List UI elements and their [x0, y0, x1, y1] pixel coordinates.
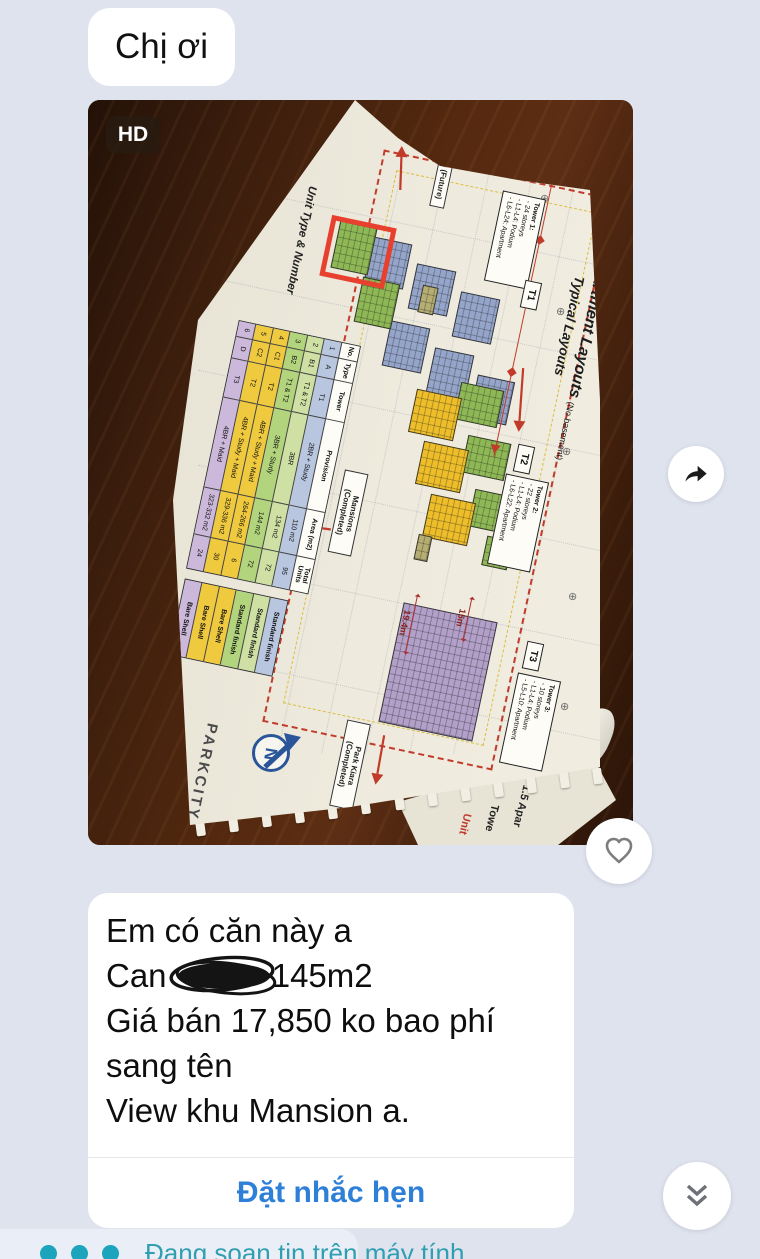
listing-line-5: View khu Mansion a.	[106, 1088, 556, 1133]
typing-dots-icon	[40, 1245, 119, 1259]
binding-tab	[526, 776, 537, 793]
listing-line-2-prefix: Can	[106, 957, 176, 994]
building-t2-yellow	[408, 389, 462, 442]
survey-marker-icon: ⊕	[557, 701, 571, 712]
listing-line-4: sang tên	[106, 1043, 556, 1088]
red-arrow-hh08	[393, 146, 409, 192]
building-t2-yellow	[415, 441, 469, 494]
set-reminder-button[interactable]: Đặt nhắc hẹn	[88, 1158, 574, 1227]
message-bubble-greeting: Chị ơi	[88, 8, 235, 86]
hd-badge: HD	[106, 116, 160, 153]
tower-tag-3: T3	[522, 641, 544, 672]
peek-text: Towe	[483, 803, 501, 832]
typing-indicator: Đang soạn tin trên máy tính	[0, 1229, 358, 1259]
binding-tab	[559, 772, 570, 789]
listing-line-1: Em có căn này a	[106, 908, 556, 953]
heart-reaction-button[interactable]	[586, 818, 652, 884]
share-forward-icon	[678, 457, 714, 491]
greeting-text: Chị ơi	[115, 27, 208, 66]
listing-line-2-suffix: 145m2	[272, 957, 373, 994]
listing-line-2: Can 145m2	[106, 953, 556, 998]
survey-marker-icon: ⊕	[565, 591, 579, 602]
scroll-to-bottom-button[interactable]	[663, 1162, 731, 1230]
photo-message[interactable]: 1.5 Apar Towe Unit	[88, 100, 633, 845]
message-bubble-listing: Em có căn này a Can 145m2 Giá bán 17,850…	[88, 893, 574, 1228]
finish-column: Standard finishStandard finishStandard f…	[169, 578, 289, 676]
unit-highlight-box	[319, 215, 396, 289]
compass-icon: N	[252, 734, 290, 772]
peek-text-red: Unit	[456, 812, 473, 836]
chat-screen: Chị ơi 1.5 Apar Towe Unit	[0, 0, 760, 1259]
heart-icon	[599, 831, 639, 871]
north-arrow-icon	[251, 725, 307, 781]
listing-line-3: Giá bán 17,850 ko bao phí	[106, 998, 556, 1043]
typing-text: Đang soạn tin trên máy tính	[145, 1238, 464, 1259]
redaction-scribble-icon	[176, 959, 272, 993]
double-chevron-down-icon	[678, 1179, 716, 1213]
share-button[interactable]	[668, 446, 724, 502]
